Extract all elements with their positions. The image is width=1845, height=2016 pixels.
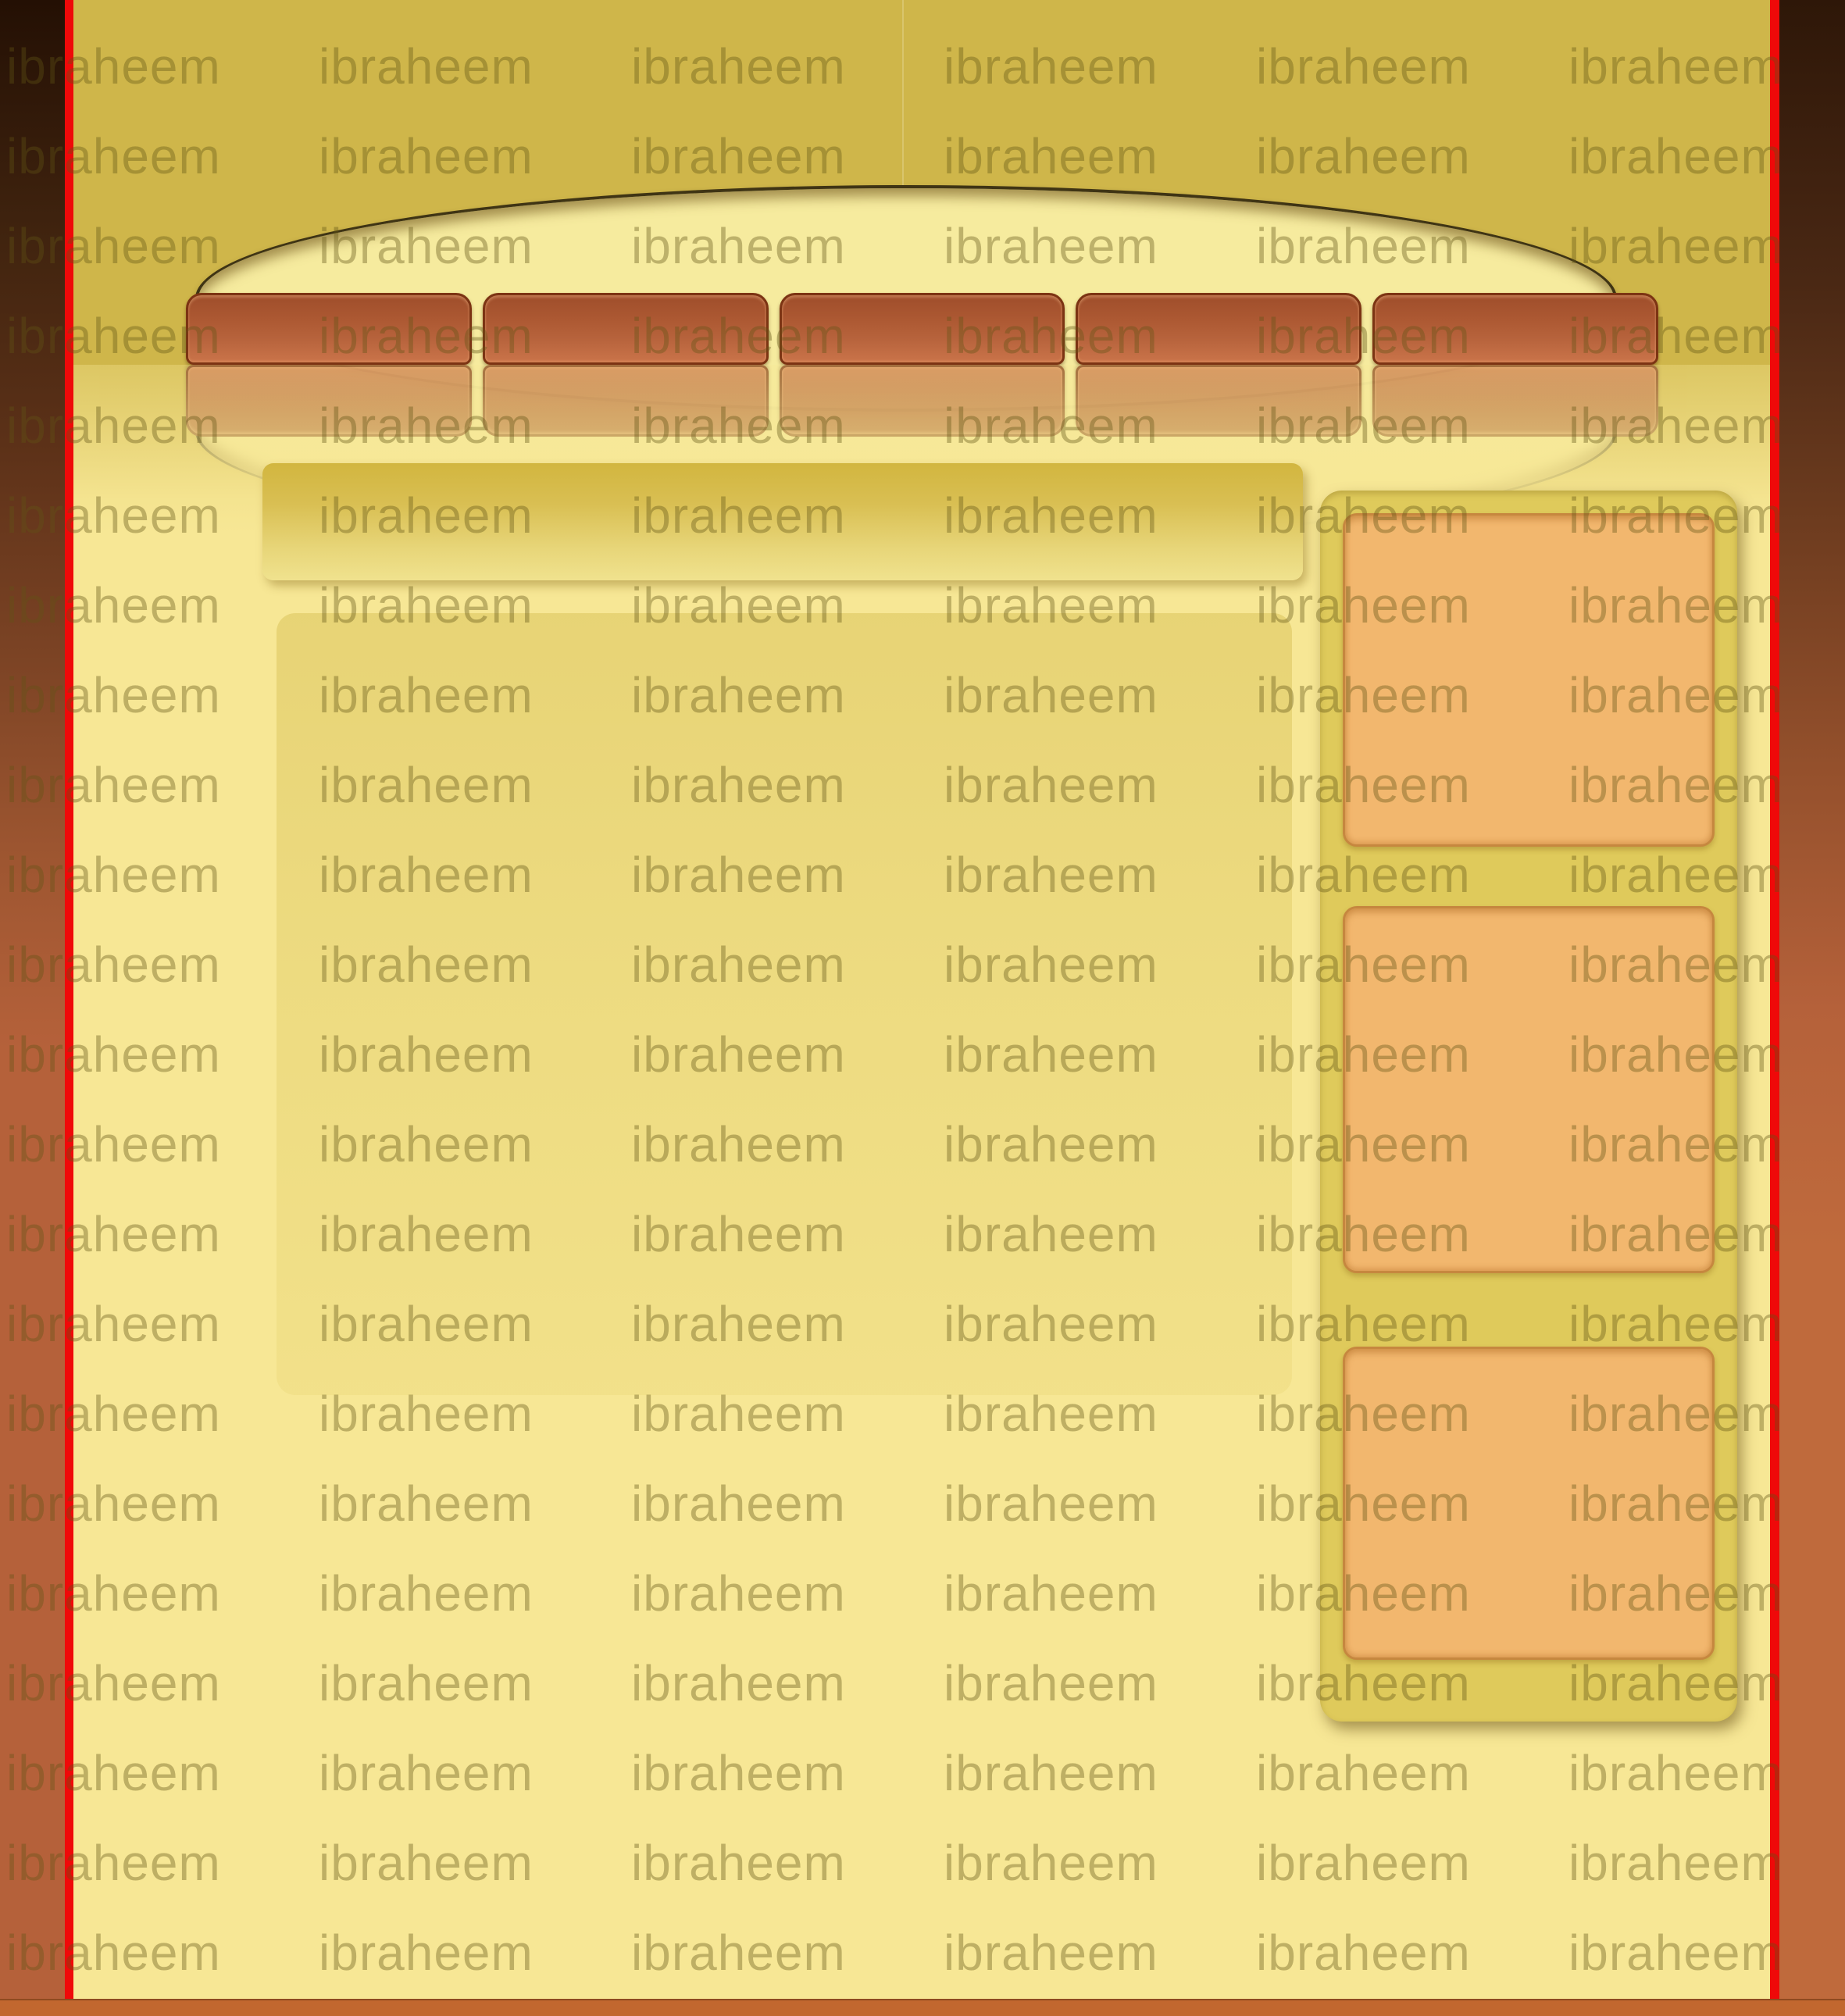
main-navigation bbox=[186, 293, 1658, 365]
sidebar-box-1[interactable] bbox=[1343, 513, 1715, 847]
footer-bar bbox=[0, 1999, 1845, 2016]
left-border-strip bbox=[0, 0, 65, 2016]
right-border-strip bbox=[1779, 0, 1845, 2016]
right-accent-line bbox=[1770, 0, 1779, 1999]
nav-button-2[interactable] bbox=[483, 293, 769, 365]
nav-button-1[interactable] bbox=[186, 293, 472, 365]
header-seam bbox=[902, 0, 904, 194]
page: ibraheemibraheemibraheemibraheemibraheem… bbox=[0, 0, 1845, 2016]
header bbox=[73, 0, 1770, 365]
nav-button-3[interactable] bbox=[780, 293, 1065, 365]
content-panel bbox=[277, 613, 1292, 1395]
sidebar-box-3[interactable] bbox=[1343, 1347, 1715, 1660]
content-banner bbox=[262, 463, 1303, 580]
left-accent-line bbox=[65, 0, 73, 1999]
main-area bbox=[73, 0, 1770, 2000]
nav-button-4[interactable] bbox=[1076, 293, 1361, 365]
sidebar-box-2[interactable] bbox=[1343, 906, 1715, 1273]
sidebar-panel bbox=[1320, 491, 1737, 1722]
nav-button-5[interactable] bbox=[1372, 293, 1658, 365]
